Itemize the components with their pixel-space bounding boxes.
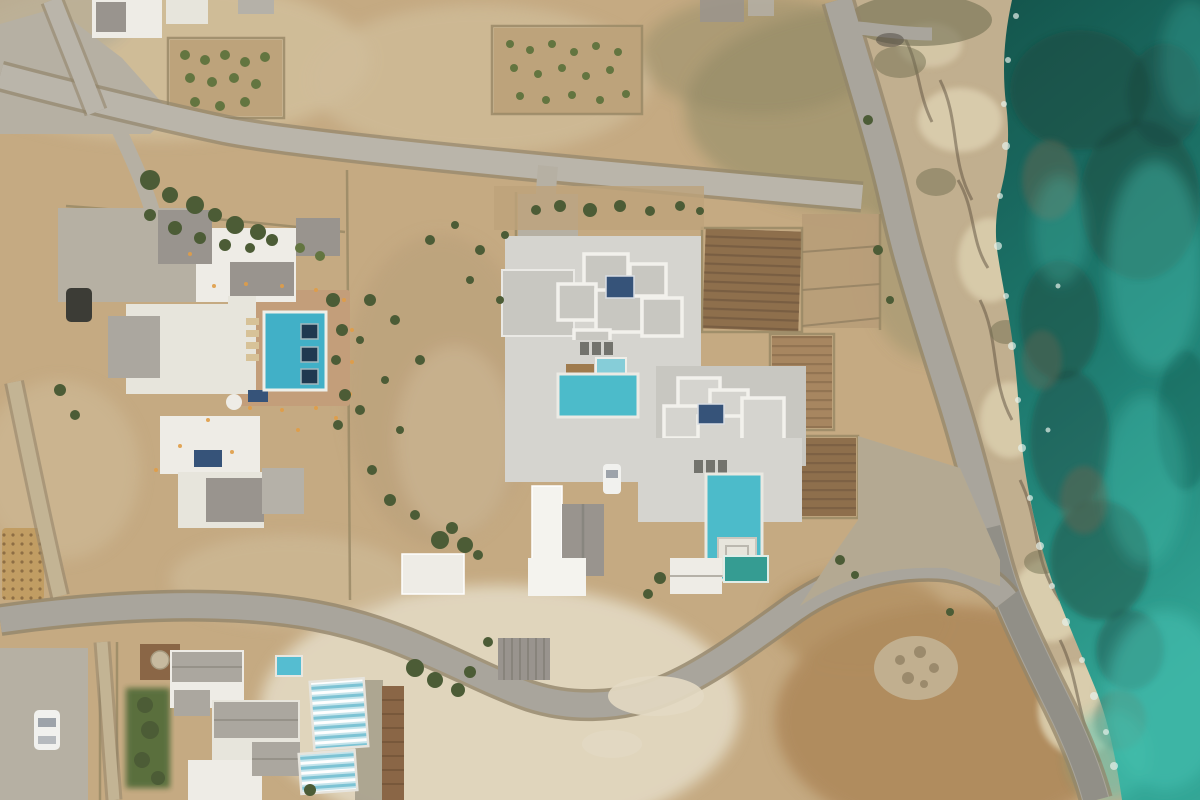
haze-overlay	[0, 0, 1200, 800]
aerial-photo-stage	[0, 0, 1200, 800]
aerial-photo	[0, 0, 1200, 800]
